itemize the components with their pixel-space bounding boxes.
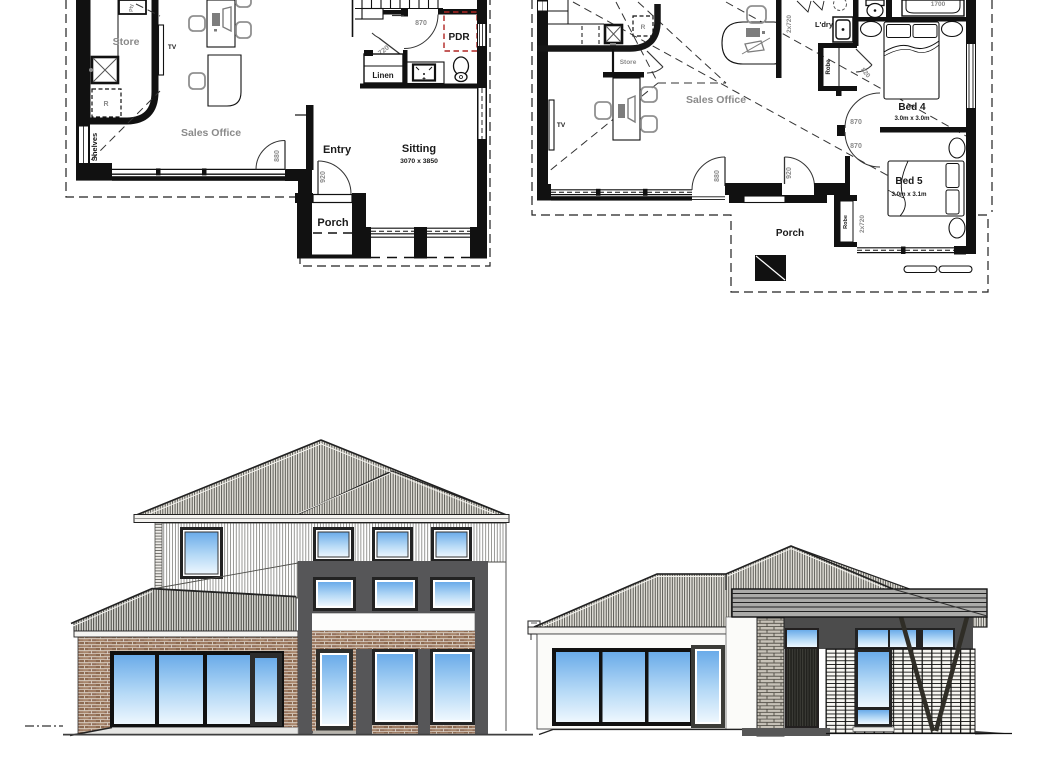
svg-text:R: R [103,101,108,108]
svg-text:2x720: 2x720 [859,215,866,233]
svg-text:L'dry: L'dry [815,20,834,29]
svg-text:Linen: Linen [372,71,393,80]
svg-text:3070 x 3850: 3070 x 3850 [400,158,438,165]
svg-text:920: 920 [786,167,793,179]
svg-text:Sales Office: Sales Office [686,94,746,106]
svg-text:TV: TV [168,44,177,51]
svg-text:870: 870 [415,20,427,27]
svg-text:Porch: Porch [317,217,348,229]
svg-text:3.0m x 3.1m: 3.0m x 3.1m [891,191,927,198]
svg-text:Porch: Porch [776,228,804,239]
svg-text:Sales Office: Sales Office [181,127,241,139]
svg-text:R: R [641,24,646,31]
svg-text:3.0m x 3.0m: 3.0m x 3.0m [894,115,930,122]
svg-text:880: 880 [714,170,721,182]
svg-text:TV: TV [557,122,566,129]
svg-text:2x720: 2x720 [786,15,793,33]
svg-text:Entry: Entry [323,144,352,156]
svg-text:Store: Store [113,36,140,48]
svg-text:Store: Store [620,59,637,66]
svg-text:1700: 1700 [931,1,946,8]
svg-text:870: 870 [850,143,862,150]
svg-text:870: 870 [850,119,862,126]
svg-text:Pty: Pty [129,4,135,12]
svg-text:Robe: Robe [826,59,832,75]
svg-text:PDR: PDR [448,32,470,43]
svg-text:Bed 5: Bed 5 [895,176,923,187]
svg-text:Bed 4: Bed 4 [898,102,926,113]
svg-text:880: 880 [274,150,281,162]
svg-text:920: 920 [320,171,327,183]
svg-text:Robe: Robe [843,215,849,229]
svg-text:Sitting: Sitting [402,143,436,155]
